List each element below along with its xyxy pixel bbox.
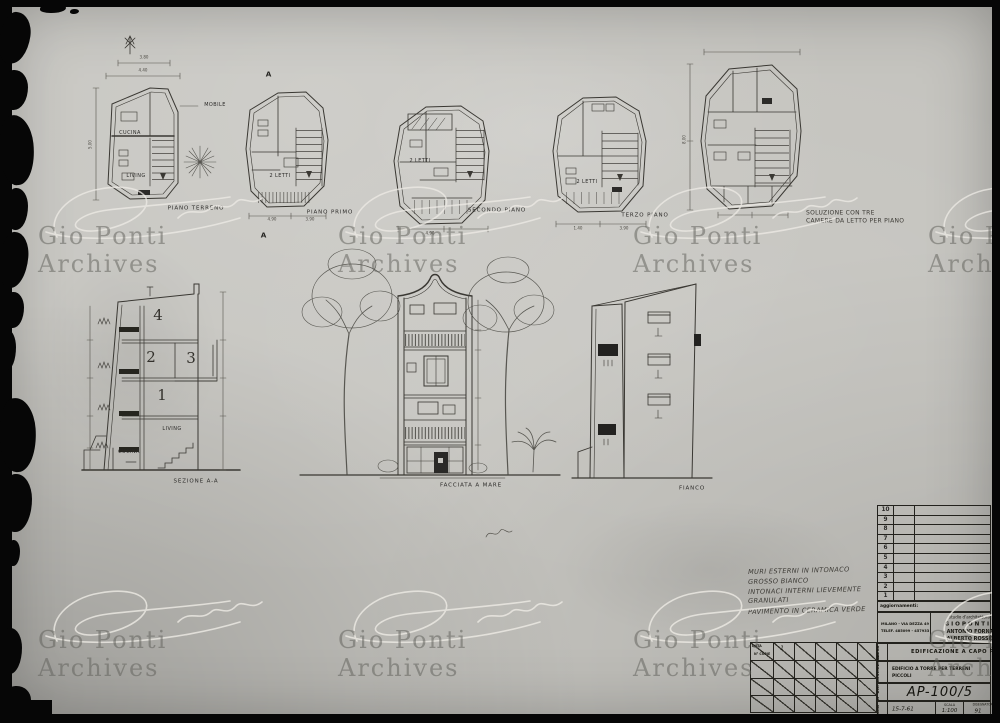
caption-terzo-piano: TERZO PIANO: [585, 212, 706, 218]
dim-label: 3.90: [295, 217, 325, 222]
caption-piano-primo: PIANO PRIMO: [270, 209, 391, 215]
revision-number: 7: [880, 535, 891, 541]
copies-value: 1: [780, 645, 784, 652]
aggiornamenti-row: aggiornamenti:: [877, 601, 991, 612]
revision-number: 10: [880, 506, 891, 512]
caption-fianco: FIANCO: [632, 485, 753, 491]
side-elevation: [572, 284, 712, 478]
revision-number: 4: [880, 564, 891, 570]
scale-label: SCALA: [944, 703, 955, 707]
revision-number: 5: [880, 554, 891, 560]
architect-fornaroli: ANTONIO FORNAROLI: [947, 629, 978, 635]
section-cut-marker-a: A: [266, 71, 272, 79]
title-block: 10 9 8 7 6 5 4 3 2 1 aggiornamenti: MILA…: [750, 503, 991, 716]
opera-value: EDIFICAZIONE A CAPO PERLA: [911, 649, 969, 655]
dim-label: 3.80: [129, 55, 159, 60]
dim-label: 4.90: [257, 217, 287, 222]
facade-tower: [300, 275, 560, 479]
revision-row: 8: [878, 524, 990, 534]
section-floor-2: 2: [141, 348, 161, 366]
revision-row: 3: [878, 572, 990, 582]
studio-box: MILANO - VIA DEZZA 49 TELEF. 485099 - 45…: [877, 612, 991, 643]
plan-terzo-piano: [553, 97, 646, 212]
revision-table: 10 9 8 7 6 5 4 3 2 1: [877, 505, 991, 601]
revision-number: 1: [880, 592, 891, 598]
descrizione-row: DESCRIZIONE EDIFICIO A TORRE PER TERRENI…: [877, 661, 991, 683]
architect-gio-ponti: G I O P O N T I: [945, 621, 980, 627]
trees: [302, 249, 556, 474]
revision-row: 10: [878, 506, 990, 515]
caption-sezione: SEZIONE A-A: [136, 478, 257, 484]
revision-row: 7: [878, 534, 990, 544]
plan-piano-terreno: [108, 88, 178, 199]
copies-header-cell: DATA N° COPIE: [751, 643, 773, 660]
plan-variante-tre-camere: [701, 65, 801, 209]
revision-row: 2: [878, 582, 990, 592]
caption-secondo-piano: SECONDO PIANO: [437, 207, 558, 213]
revision-number: 2: [880, 583, 891, 589]
copies-header-ncopie: N° COPIE: [754, 652, 770, 656]
caption-facciata: FACCIATA A MARE: [411, 482, 532, 488]
revision-row: 9: [878, 515, 990, 525]
dim-label: 4.40: [128, 68, 158, 73]
pencil-scribble: [486, 529, 512, 537]
descrizione-value-line1: EDIFICIO A TORRE PER TERRENI: [892, 666, 970, 671]
studio-address-line1: MILANO - VIA DEZZA 49: [881, 622, 929, 626]
plan-piano-primo: [246, 92, 328, 207]
dim-label: 4.90: [415, 231, 445, 236]
section-label-living: LIVING: [139, 426, 205, 432]
room-label-mobile: MOBILE: [182, 102, 248, 108]
plan-note-line1: SOLUZIONE CON TRE: [806, 209, 875, 216]
drawing-number-value: AP-100/5: [890, 685, 990, 700]
dim-label: 1.40: [563, 226, 593, 231]
opera-row: OPERA EDIFICAZIONE A CAPO PERLA: [877, 643, 991, 661]
revision-row: 1: [878, 591, 990, 601]
revision-number: 3: [880, 573, 891, 579]
revision-row: 5: [878, 553, 990, 563]
copies-header-data: DATA: [752, 644, 762, 648]
room-label-living: LIVING: [103, 173, 169, 179]
room-label-due-letti: 2 LETTI: [247, 173, 313, 179]
section-floor-1: 1: [152, 386, 172, 404]
studio-line: studio d'architettura: [949, 615, 975, 620]
caption-piano-terreno: PIANO TERRENO: [136, 205, 257, 211]
descrizione-value-line2: PICCOLI: [892, 673, 912, 678]
print-copies-table: DATA N° COPIE 1: [750, 642, 877, 713]
revision-row: 4: [878, 563, 990, 573]
draughtsman-label: DISEGNATORE: [973, 703, 984, 706]
dim-label: 8.00: [682, 125, 687, 155]
architect-rosselli: ALBERTO ROSSELLI: [947, 636, 978, 642]
room-label-cucina: CUCINA: [97, 130, 163, 136]
dim-label: 3.90: [609, 226, 639, 231]
drawing-number-row: N° DIS. AP-100/5: [877, 683, 991, 701]
compass-star: [184, 146, 216, 178]
revision-number: 6: [880, 544, 891, 550]
section-floor-3: 3: [181, 349, 201, 367]
revision-row: 6: [878, 543, 990, 553]
copies-cell: 1: [773, 643, 794, 660]
room-label-due-letti: 2 LETTI: [554, 179, 620, 185]
dim-label: 5.00: [88, 130, 93, 160]
scanned-architectural-drawing: PIANO TERRENO PIANO PRIMO SECONDO PIANO …: [0, 0, 1000, 723]
section-cut-marker-a: A: [261, 232, 267, 240]
section-label-cucina: CUCINA: [96, 449, 162, 455]
date-value: 15-7-61: [892, 706, 914, 712]
room-label-due-letti: 2 LETTI: [387, 158, 453, 164]
revision-number: 8: [880, 525, 891, 531]
section-floor-4: 4: [148, 306, 168, 324]
plan-note-line2: CAMERE DA LETTO PER PIANO: [806, 217, 904, 224]
aggiornamenti-label: aggiornamenti:: [880, 603, 918, 608]
revision-number: 9: [880, 516, 891, 522]
north-arrow: [125, 36, 135, 54]
studio-address-line2: TELEF. 485099 - 457933: [881, 629, 929, 633]
